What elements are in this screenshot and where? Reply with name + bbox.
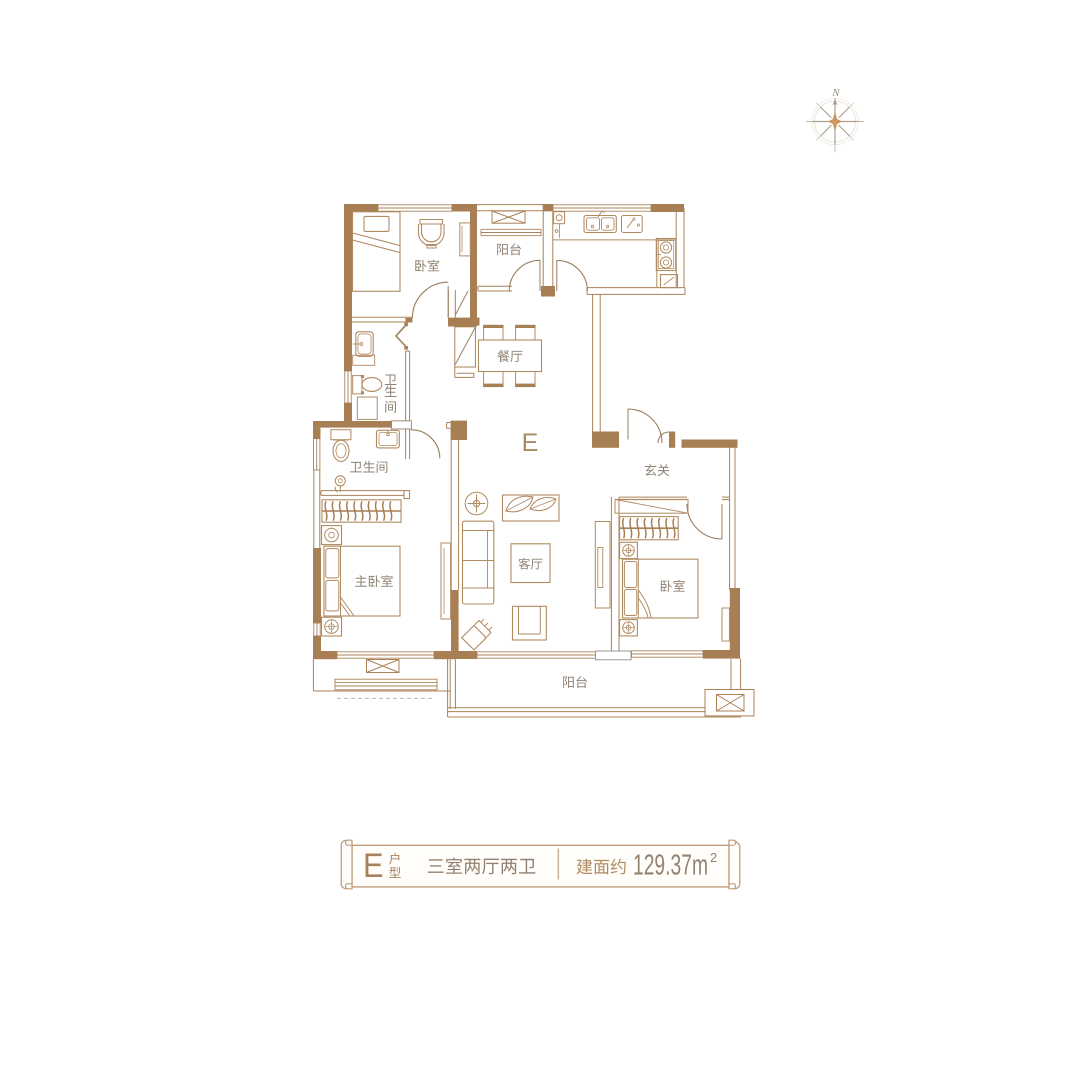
svg-text:129.37m: 129.37m	[633, 850, 708, 882]
svg-text:E: E	[363, 847, 384, 885]
svg-text:2: 2	[710, 850, 717, 865]
svg-text:E: E	[522, 429, 539, 457]
svg-text:N: N	[831, 88, 840, 99]
